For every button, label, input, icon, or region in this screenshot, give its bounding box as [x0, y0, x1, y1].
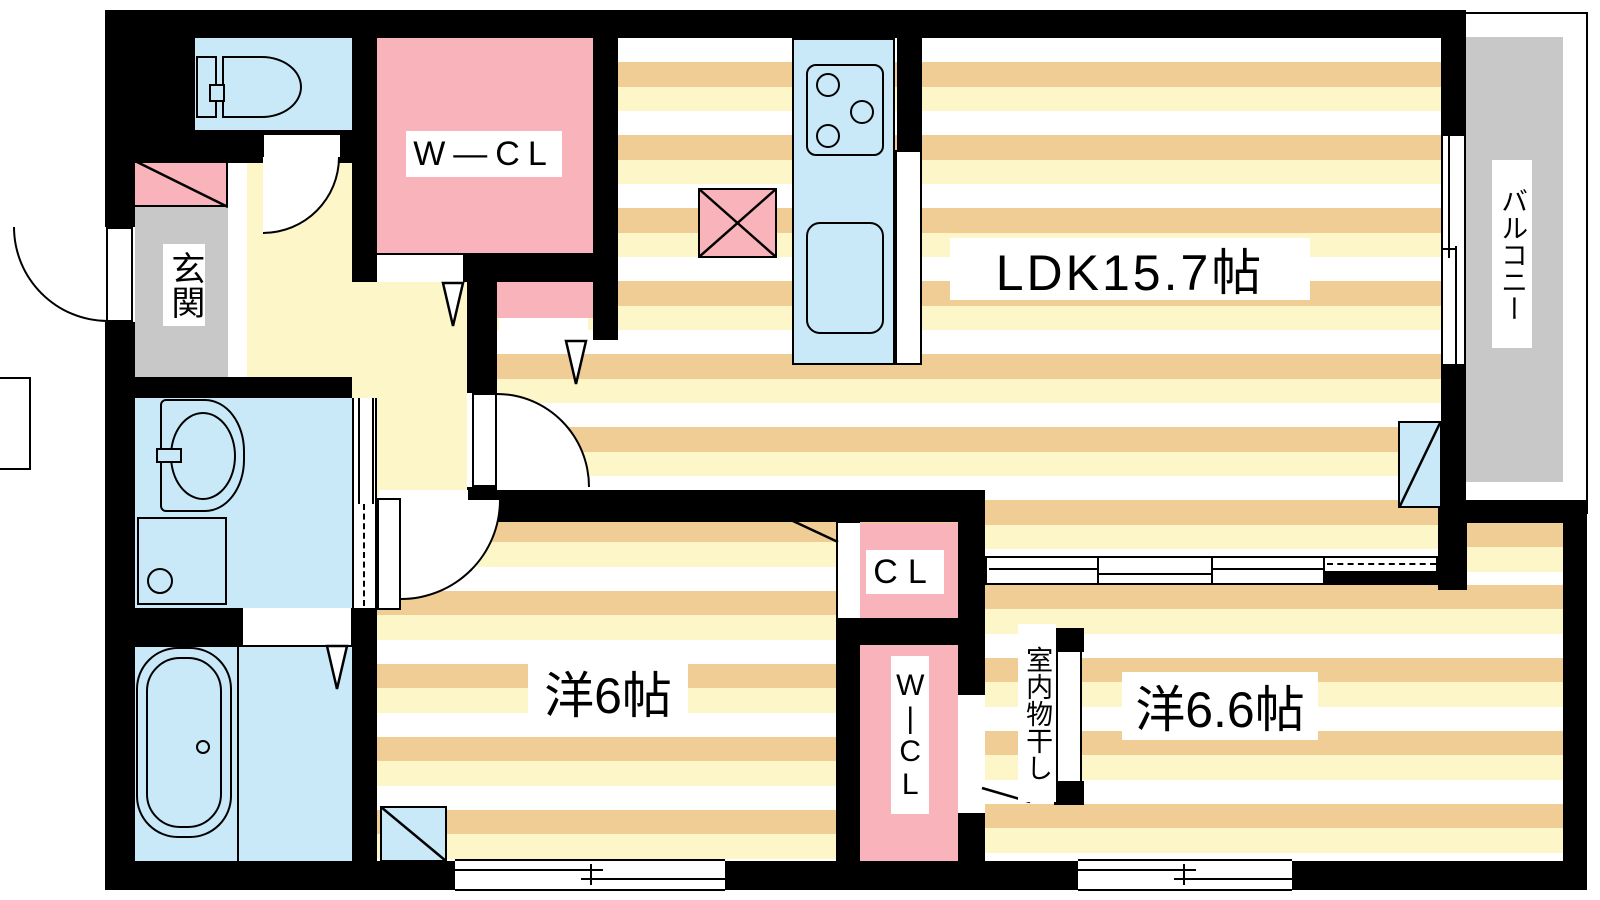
stove-burner-icon — [816, 124, 840, 148]
stove-burner-icon — [850, 100, 874, 124]
label-closet: CL — [866, 550, 944, 594]
label-walk-in-closet: W—CL — [406, 131, 562, 177]
wall-corridor-bottom — [467, 490, 985, 522]
ac-unit-diagonal — [1398, 421, 1442, 508]
stove-icon — [806, 64, 884, 156]
label-entrance: 玄関 — [163, 244, 205, 326]
bathroom-floor-edge — [237, 647, 239, 861]
closet-opening — [838, 523, 860, 618]
toilet-door-leaf — [262, 133, 342, 159]
washroom-sliding-door — [352, 398, 377, 608]
entrance-door-leaf — [106, 227, 133, 322]
ac-unit-diagonal — [380, 806, 447, 862]
ldk-door-leaf — [472, 393, 497, 487]
kitchen-counter-edge — [895, 150, 922, 365]
sliding-door-panel — [358, 398, 374, 504]
room66-window — [1078, 859, 1292, 891]
toilet-flush-icon — [209, 84, 225, 102]
entrance-porch-step — [0, 377, 31, 470]
wall-wic-right-lower — [958, 813, 985, 861]
slider-rail — [1099, 573, 1211, 575]
entrance-step — [228, 160, 247, 377]
slider-divider — [1211, 558, 1213, 583]
wcl-opening — [377, 255, 463, 282]
laundry-pole-icon — [1056, 628, 1082, 805]
wall-topleft-block — [105, 10, 195, 133]
wcl-entry-arrow — [441, 282, 465, 328]
bathtub-inner-icon — [146, 657, 222, 828]
wall-stub-ldk-corner — [1438, 500, 1467, 590]
washing-machine-icon — [137, 517, 227, 605]
western-room-66-floor-notch — [1467, 523, 1563, 585]
ldk-room66-sliding-doors — [985, 556, 1438, 585]
wall-left-column-lower — [352, 608, 377, 861]
floor-plan: LDK15.7帖 洋6帖 洋6.6帖 W—CL CL W|CL 玄関 バルコニー… — [0, 0, 1600, 900]
bathtub-drain-icon — [196, 740, 210, 754]
storage-closet-opening — [499, 318, 588, 340]
washing-machine-drain-icon — [147, 568, 173, 594]
shoe-cabinet-diagonal — [133, 160, 228, 207]
label-western-room-66: 洋6.6帖 — [1122, 672, 1318, 740]
entrance-door-arc — [13, 227, 108, 322]
wall-wcl-right — [593, 10, 618, 340]
window-frame-line — [1174, 878, 1292, 880]
window-meeting-tick — [1183, 864, 1185, 885]
slider-wall-section — [1325, 571, 1440, 583]
sliding-door-pocket-dashed — [363, 504, 365, 606]
wall-washroom-top — [135, 377, 352, 398]
wall-wic-right-upper — [958, 495, 985, 695]
window-frame-line — [1455, 246, 1457, 364]
laundry-pole-cap — [1054, 628, 1084, 652]
wall-wcl-left — [352, 10, 377, 282]
window-meeting-tick — [590, 864, 592, 885]
room6-door-leaf — [377, 498, 401, 610]
storage-closet-arrow — [564, 340, 588, 386]
refrigerator-x-icon — [698, 188, 777, 258]
wall-bottom — [105, 861, 1587, 890]
slider-rail — [989, 568, 1097, 570]
label-indoor-laundry: 室内物干し — [1018, 624, 1056, 802]
slider-dashed-section — [1327, 563, 1436, 565]
closet-door-diagonal — [776, 510, 840, 546]
washbasin-faucet-icon — [156, 448, 182, 463]
label-wic: W|CL — [891, 656, 929, 814]
slider-divider — [1097, 558, 1099, 583]
bathroom-entry-arrow — [325, 645, 349, 691]
bathroom-door-gap — [243, 608, 351, 645]
wall-right-lower — [1563, 500, 1587, 890]
room6-window — [455, 859, 725, 891]
balcony-window — [1441, 136, 1466, 364]
toilet-bowl-icon — [222, 56, 302, 118]
wall-cl-wic-divider — [860, 618, 958, 645]
wall-top — [105, 10, 1466, 38]
stove-burner-icon — [816, 73, 840, 97]
label-western-room-6: 洋6帖 — [528, 658, 688, 726]
slider-rail — [1213, 568, 1323, 570]
window-frame-line — [455, 869, 603, 871]
kitchen-sink-icon — [806, 222, 884, 334]
label-balcony: バルコニー — [1492, 160, 1532, 348]
window-frame-line — [581, 878, 725, 880]
window-frame-line — [1078, 869, 1196, 871]
wall-left — [105, 10, 135, 890]
window-meeting-tick — [1443, 248, 1456, 250]
laundry-pole-cap — [1054, 781, 1084, 805]
storage-closet — [497, 282, 593, 318]
window-frame-line — [1448, 136, 1450, 258]
wall-kitchen-stub — [897, 10, 922, 152]
label-ldk: LDK15.7帖 — [950, 238, 1310, 300]
